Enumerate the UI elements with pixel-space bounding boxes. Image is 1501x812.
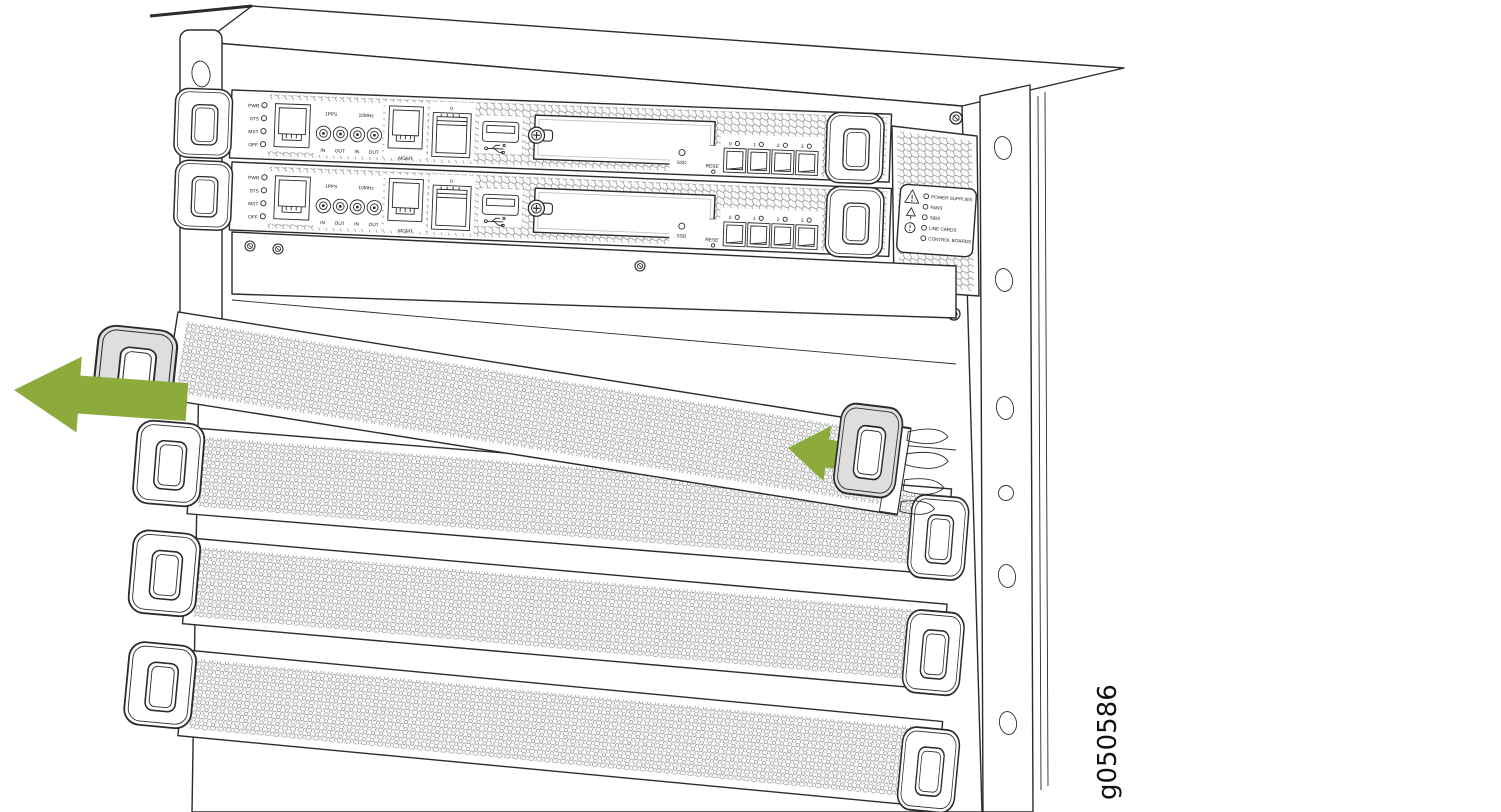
chassis-top-back-edge [150, 6, 252, 16]
alarm-led-panel: POWER SUPPLIES FANS SIBS LINE CARDS CONT… [896, 184, 977, 257]
alarm-ok-icon [905, 222, 916, 233]
removed-panel-right-handle [832, 402, 904, 499]
right-rack-flange [980, 85, 1033, 812]
flange-hole-4 [999, 486, 1014, 501]
chassis-side-edge-1 [1038, 96, 1041, 790]
chassis-side-edge-2 [1045, 92, 1048, 786]
chassis-illustration: PWR STS MST OFF 1PPS 10MHz [0, 0, 1501, 812]
alarm-led-label-fans: FANS [930, 205, 942, 211]
face-screw-top-right [950, 112, 962, 124]
figure-canvas: PWR STS MST OFF 1PPS 10MHz [0, 0, 1501, 812]
alarm-led-label-sibs: SIBS [930, 215, 941, 221]
figure-id-label: g050586 [1093, 684, 1123, 800]
